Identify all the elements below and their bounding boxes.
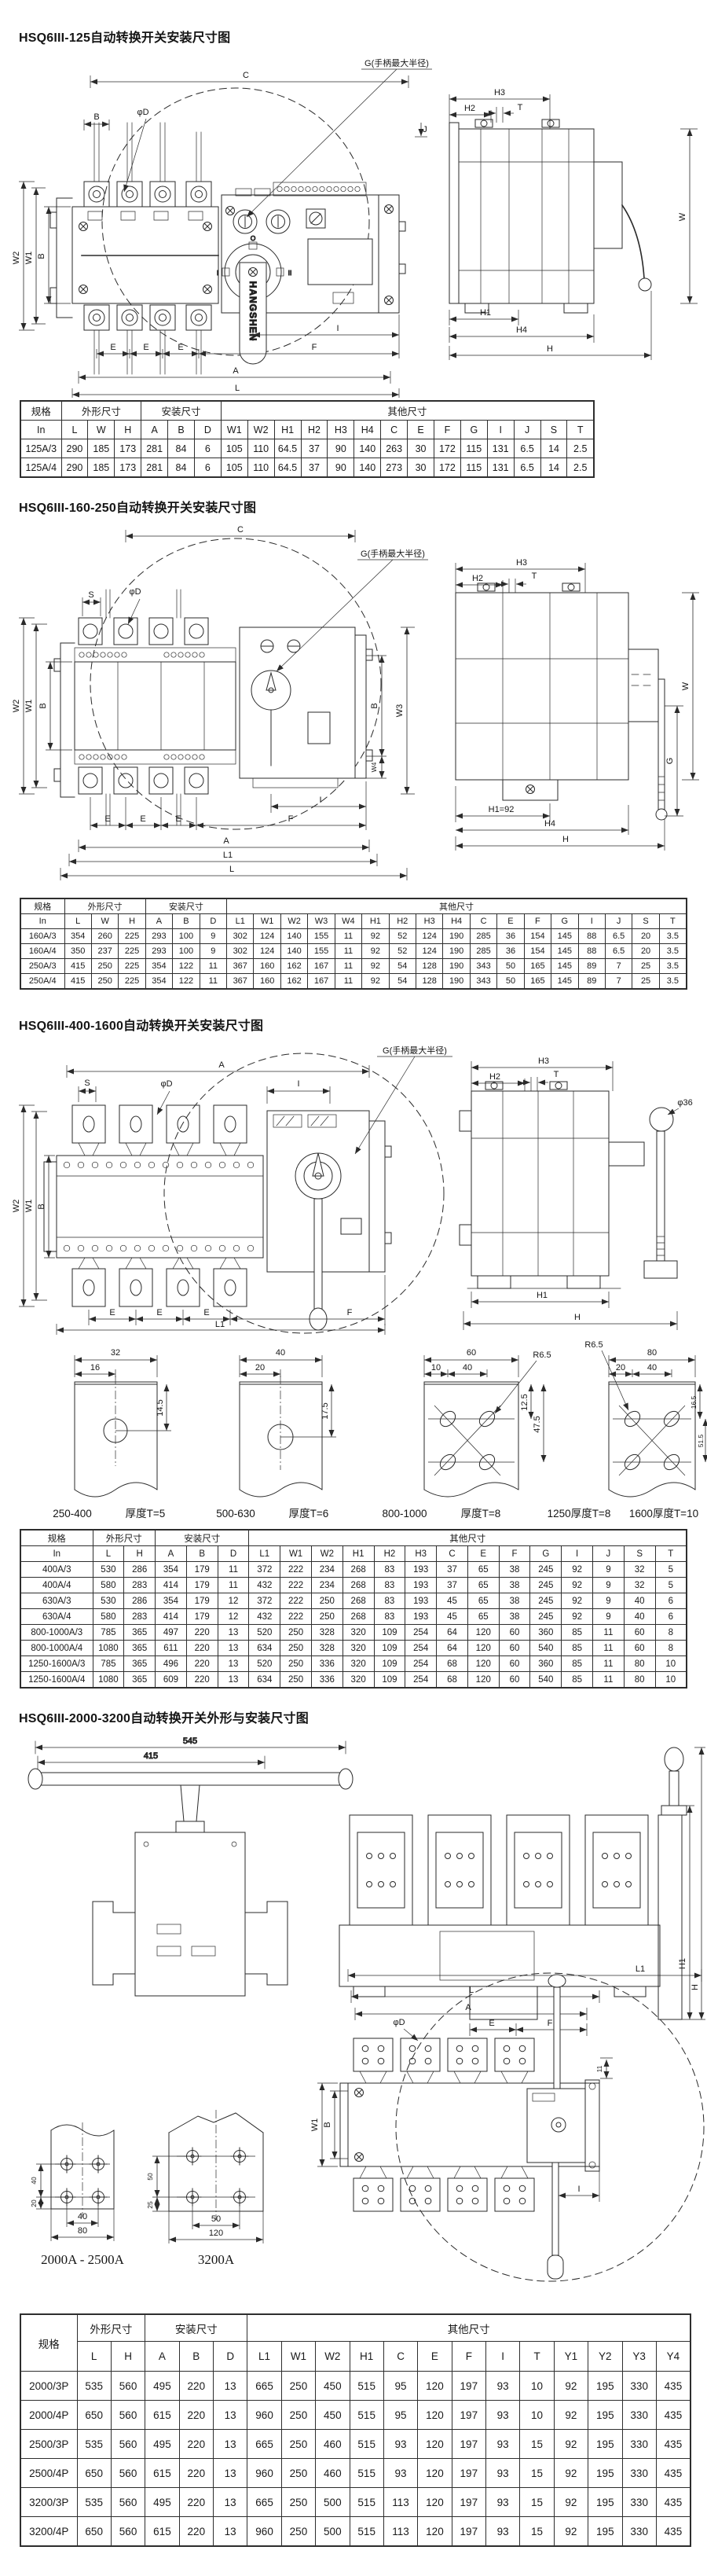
table-cell: 185 [88, 439, 115, 458]
table-cell: 650 [77, 2401, 111, 2430]
terminal-lug [185, 618, 208, 645]
dim-label-h: H [562, 835, 569, 844]
table-cell: 193 [405, 1609, 437, 1625]
table-cell: 286 [124, 1562, 156, 1578]
table-cell: 128 [416, 959, 442, 974]
dim-label-w4: W4 [370, 762, 378, 772]
terminal-bolt [542, 119, 559, 127]
table-cell: 367 [227, 974, 254, 990]
table-cell: 45 [437, 1593, 468, 1609]
table-header-cell: T [655, 1546, 687, 1562]
right-plate [585, 2080, 599, 2171]
table-header-cell: 安装尺寸 [156, 1530, 249, 1546]
table-cell: 11 [335, 944, 361, 959]
handle-post [658, 1815, 682, 2019]
table-header-cell: H2 [301, 421, 328, 439]
table-cell: 197 [452, 2372, 485, 2401]
table-cell: 145 [551, 974, 578, 990]
table-row: 125A/429018517328184610511064.5379014027… [20, 458, 594, 478]
dim-label-e: E [203, 1308, 209, 1317]
terminal-strip-holes [277, 186, 360, 191]
knob-label-o: O [251, 234, 256, 242]
body-rivets [64, 1162, 254, 1251]
side-flanges [93, 1902, 288, 1985]
table-cell: 15 [520, 2517, 554, 2547]
terminal-pad [353, 2178, 393, 2211]
table-cell: 2.5 [567, 439, 594, 458]
screw-icon [385, 205, 394, 214]
table-cell: 560 [111, 2459, 145, 2488]
table-cell: 11 [335, 929, 361, 944]
dim-label-g: G [665, 758, 675, 765]
dimension-drawing-160-250: C G(手柄最大半径) S φD W2 W1 B B W4 W3 EEEF I … [0, 517, 707, 896]
table-cell: 12 [218, 1593, 249, 1609]
dim-label-t: T [518, 103, 523, 112]
table-cell: 197 [452, 2459, 485, 2488]
table-cell: 634 [249, 1672, 280, 1689]
terminal-bolt [478, 583, 495, 591]
dim-label-h4: H4 [516, 325, 527, 335]
table-header-cell: W2 [247, 421, 274, 439]
table-cell: 8 [655, 1625, 687, 1641]
table-cell: 6 [194, 458, 221, 478]
dim-label-w: W [678, 212, 687, 221]
table-cell: 225 [119, 974, 145, 990]
table-header-cell: L [93, 1546, 124, 1562]
table-cell: 179 [186, 1578, 218, 1593]
table-cell: 85 [562, 1641, 593, 1656]
dim-label-h4: H4 [544, 819, 555, 829]
hole-caption: 厚度T=5 [126, 1508, 166, 1520]
table-header-cell: H3 [416, 914, 442, 929]
table-cell: 225 [119, 929, 145, 944]
table-cell: 330 [622, 2459, 656, 2488]
dim-label-a: A [223, 836, 229, 846]
table-cell: 330 [622, 2517, 656, 2547]
table-cell: 365 [124, 1656, 156, 1672]
table-cell: 285 [470, 929, 496, 944]
table-cell: 354 [145, 959, 172, 974]
table-cell: 260 [91, 929, 118, 944]
table-cell: 38 [499, 1562, 530, 1578]
table-cell: 50 [497, 974, 524, 990]
dim-label-phid: φD [393, 2018, 405, 2027]
table-header-cell: 规格 [20, 1530, 93, 1546]
table-cell: 80 [624, 1672, 655, 1689]
terminal-pad [495, 2178, 534, 2211]
dim-label-h1: H1 [480, 308, 491, 318]
handle-knob [656, 809, 667, 820]
table-cell: 500 [316, 2517, 350, 2547]
table-header-cell: J [593, 1546, 625, 1562]
table-cell: 92 [362, 974, 389, 990]
table-cell: 302 [227, 929, 254, 944]
dim-label: 16.5 [690, 1395, 698, 1409]
table-header-cell: H [119, 914, 145, 929]
table-cell: 65 [467, 1578, 499, 1593]
dim-label: 16 [90, 1363, 100, 1373]
table-cell: 110 [247, 439, 274, 458]
table-cell: 195 [588, 2401, 622, 2430]
dim-label-w1: W1 [24, 700, 34, 713]
table-cell: 13 [214, 2459, 247, 2488]
table-cell: 140 [280, 944, 307, 959]
table-cell: 92 [554, 2517, 588, 2547]
table-columns-row: LHABDL1W1W2H1CEFITY1Y2Y3Y4 [20, 2342, 691, 2372]
table-cell: 54 [389, 974, 416, 990]
table-cell: 515 [350, 2430, 383, 2459]
crosshair-hole [90, 2188, 107, 2206]
operating-handle [314, 1199, 322, 1314]
table-cell: 336 [311, 1672, 343, 1689]
pole-module [507, 1815, 570, 1925]
table-cell: 496 [156, 1656, 187, 1672]
table-header-cell: H2 [374, 1546, 405, 1562]
spec-cell: 800-1000A/3 [20, 1625, 93, 1641]
detail-caption: 3200A [198, 2252, 235, 2267]
table-cell: 460 [316, 2430, 350, 2459]
table-header-cell: S [632, 914, 659, 929]
table-cell: 580 [93, 1578, 124, 1593]
table-cell: 3.5 [659, 974, 687, 990]
table-cell: 145 [551, 929, 578, 944]
dim-label-h3: H3 [538, 1056, 549, 1066]
table-cell: 195 [588, 2517, 622, 2547]
table-cell: 85 [562, 1656, 593, 1672]
table-cell: 25 [632, 959, 659, 974]
table-cell: 285 [470, 944, 496, 959]
dim-label-h: H [547, 344, 553, 354]
table-header-cell: Y1 [554, 2342, 588, 2372]
table-cell: 93 [486, 2430, 520, 2459]
side-view [460, 1082, 677, 1288]
terminal-lug [186, 182, 211, 207]
dim-label: 80 [78, 2226, 87, 2236]
table-header-cell: A [145, 2342, 179, 2372]
table-cell: 85 [562, 1625, 593, 1641]
table-cell: 195 [588, 2372, 622, 2401]
table-cell: 237 [91, 944, 118, 959]
table-columns-row: InLWHABDW1W2H1H2H3H4CEFGIJST [20, 421, 594, 439]
pole-module [350, 1815, 412, 1925]
table-cell: 120 [467, 1672, 499, 1689]
table-cell: 160 [254, 959, 280, 974]
table-cell: 343 [470, 974, 496, 990]
busbars-bottom [94, 330, 201, 374]
switch-column [135, 1832, 245, 1996]
table-group-row: 规格外形尺寸安装尺寸其他尺寸 [20, 898, 687, 914]
table-cell: 52 [389, 929, 416, 944]
table-cell: 36 [497, 944, 524, 959]
table-cell: 64.5 [274, 439, 301, 458]
table-cell: 281 [141, 458, 168, 478]
table-cell: 1080 [93, 1672, 124, 1689]
dim-label-f: F [548, 2019, 553, 2028]
table-cell: 365 [124, 1672, 156, 1689]
table-cell: 190 [443, 944, 470, 959]
table-header-cell: B [179, 2342, 213, 2372]
terminal-pad [72, 1269, 105, 1306]
table-cell: 268 [343, 1593, 374, 1609]
terminal-lug [84, 305, 109, 330]
dim-label-i: I [336, 324, 339, 333]
table-cell: 220 [179, 2401, 213, 2430]
table-cell: 92 [562, 1578, 593, 1593]
dim-label-h2: H2 [464, 104, 475, 113]
dim-label-t: T [532, 571, 537, 581]
table-cell: 122 [173, 974, 200, 990]
table-cell: 268 [343, 1578, 374, 1593]
display-window [308, 239, 372, 285]
terminal-pad [495, 2038, 534, 2071]
detail-caption: 2000A - 2500A [41, 2252, 125, 2267]
table-cell: 9 [593, 1609, 625, 1625]
table-cell: 785 [93, 1656, 124, 1672]
table-header-cell: In [20, 1546, 93, 1562]
table-cell: 190 [443, 959, 470, 974]
table-header-cell: W [88, 421, 115, 439]
spec-cell: 800-1000A/4 [20, 1641, 93, 1656]
table-cell: 100 [173, 929, 200, 944]
table-header-cell: L1 [247, 2342, 281, 2372]
table-cell: 12 [218, 1609, 249, 1625]
table-header-cell: E [418, 2342, 452, 2372]
table-header-cell: C [381, 421, 408, 439]
table-cell: 495 [145, 2372, 179, 2401]
handle-upper-rod [554, 1987, 560, 2089]
handle-radius-note: G(手柄最大半径) [364, 57, 429, 68]
table-cell: 60 [499, 1656, 530, 1672]
table-header-cell: 规格 [20, 401, 61, 421]
right-mounting-bracket [369, 1121, 391, 1272]
table-cell: 13 [218, 1672, 249, 1689]
terminal-lug [79, 767, 102, 794]
section-title-400-1600: HSQ6III-400-1600自动转换开关安装尺寸图 [19, 1015, 263, 1034]
table-cell: 120 [418, 2488, 452, 2517]
table-row: 1250-1600A/37853654962201352025033632010… [20, 1656, 687, 1672]
spec-cell: 125A/3 [20, 439, 61, 458]
table-cell: 109 [374, 1656, 405, 1672]
dim-label-i: I [577, 2185, 580, 2194]
table-cell: 250 [281, 2488, 315, 2517]
table-header-cell: H1 [350, 2342, 383, 2372]
table-group-row: 规格外形尺寸安装尺寸其他尺寸 [20, 2314, 691, 2342]
table-cell: 172 [434, 439, 460, 458]
spec-cell: 630A/3 [20, 1593, 93, 1609]
dim-label: 25 [146, 2201, 154, 2209]
table-cell: 960 [247, 2517, 281, 2547]
dim-label-w3: W3 [395, 704, 405, 718]
dim-label: 17.5 [321, 1402, 330, 1419]
table-cell: 124 [254, 929, 280, 944]
table-cell: 220 [186, 1641, 218, 1656]
dim-label-a: A [465, 2003, 471, 2012]
table-cell: 330 [622, 2372, 656, 2401]
table-cell: 281 [141, 439, 168, 458]
table-cell: 84 [168, 458, 195, 478]
table-cell: 222 [280, 1562, 312, 1578]
table-cell: 120 [418, 2517, 452, 2547]
dim-label: 80 [647, 1348, 657, 1358]
side-dimensions: H3 H2 T φ36 H1 H [463, 1056, 693, 1330]
table-cell: 38 [499, 1578, 530, 1593]
table-cell: 330 [622, 2488, 656, 2517]
table-cell: 328 [311, 1625, 343, 1641]
dim-label-f: F [312, 343, 317, 352]
table-cell: 37 [437, 1562, 468, 1578]
table-row: 3200/3P535560495220136652505005151131201… [20, 2488, 691, 2517]
table-cell: 11 [593, 1672, 625, 1689]
dim-label-b: B [37, 1203, 46, 1209]
handle-top-knob [548, 1975, 566, 1987]
dimension-drawing-400-1600: A G(手柄最大半径) S φD I W2 W1 B EEEF L1 H3 H2… [0, 1036, 707, 1336]
table-cell: 535 [77, 2430, 111, 2459]
dimension-table-2000-3200: 规格外形尺寸安装尺寸其他尺寸LHABDL1W1W2H1CEFITY1Y2Y3Y4… [20, 2313, 691, 2547]
table-cell: 10 [655, 1656, 687, 1672]
spec-cell: 250A/3 [20, 959, 64, 974]
table-cell: 11 [593, 1641, 625, 1656]
table-cell: 8 [655, 1641, 687, 1656]
table-cell: 90 [328, 458, 354, 478]
table-header-cell: A [145, 914, 172, 929]
table-cell: 367 [227, 959, 254, 974]
spec-cell: 125A/4 [20, 458, 61, 478]
table-header-cell: D [218, 1546, 249, 1562]
side-dimensions: H3 H2 T G W H1=92 H4 H [456, 558, 699, 851]
table-cell: 254 [405, 1672, 437, 1689]
table-cell: 197 [452, 2488, 485, 2517]
dim-label-11: 11 [595, 2065, 603, 2072]
dim-label-radius: R6.5 [533, 1350, 551, 1360]
table-cell: 560 [111, 2488, 145, 2517]
table-header-cell: S [624, 1546, 655, 1562]
table-row: 400A/35302863541791137222223426883193376… [20, 1562, 687, 1578]
table-cell: 13 [218, 1625, 249, 1641]
table-cell: 38 [499, 1593, 530, 1609]
table-cell: 37 [437, 1578, 468, 1593]
hole-caption: 250-400 [53, 1508, 92, 1520]
terminal-pad [72, 1105, 105, 1143]
table-cell: 6.5 [605, 929, 632, 944]
side-handle-rod [658, 679, 665, 811]
table-cell: 3.5 [659, 959, 687, 974]
table-row: 2000/4P650560615220139602504505159512019… [20, 2401, 691, 2430]
section-title-125: HSQ6III-125自动转换开关安装尺寸图 [19, 27, 230, 46]
table-cell: 250 [91, 959, 118, 974]
left-mounting-bracket [54, 643, 75, 797]
terminal-lug [185, 767, 208, 794]
table-cell: 193 [405, 1562, 437, 1578]
table-cell: 45 [437, 1609, 468, 1625]
side-body [471, 1091, 609, 1276]
table-cell: 195 [588, 2459, 622, 2488]
table-cell: 20 [632, 944, 659, 959]
table-cell: 580 [93, 1609, 124, 1625]
table-cell: 20 [632, 929, 659, 944]
table-cell: 283 [124, 1609, 156, 1625]
table-cell: 222 [280, 1578, 312, 1593]
spec-cell: 3200/3P [20, 2488, 77, 2517]
dim-label-e: E [178, 343, 183, 352]
table-cell: 250 [280, 1672, 312, 1689]
table-cell: 450 [316, 2401, 350, 2430]
table-cell: 5 [655, 1562, 687, 1578]
dim-label-l: L [229, 865, 234, 874]
screw-icon [203, 285, 212, 294]
table-cell: 167 [308, 974, 335, 990]
table-header-cell: Y3 [622, 2342, 656, 2372]
table-cell: 320 [343, 1672, 374, 1689]
hole-caption: 1600厚度T=10 [629, 1508, 698, 1520]
table-cell: 320 [343, 1641, 374, 1656]
spec-cell: 2000/3P [20, 2372, 77, 2401]
table-cell: 360 [530, 1625, 562, 1641]
side-body [456, 593, 628, 780]
table-cell: 665 [247, 2430, 281, 2459]
table-cell: 220 [186, 1625, 218, 1641]
dim-label-l1: L1 [223, 851, 233, 860]
table-header-cell: W3 [308, 914, 335, 929]
handle-mount [609, 1142, 644, 1166]
dim-label-c: C [237, 525, 244, 535]
indicator-meters [233, 210, 290, 233]
table-columns-row: InLWHABDL1W1W2W3W4H1H2H3H4CEFGIJST [20, 914, 687, 929]
table-cell: 30 [408, 439, 434, 458]
table-row: 3200/4P650560615220139602505005151131201… [20, 2517, 691, 2547]
table-cell: 115 [460, 439, 487, 458]
dim-label-l: L [235, 384, 240, 393]
dim-label: 120 [209, 2229, 223, 2238]
table-cell: 268 [343, 1562, 374, 1578]
front-dimensions: A G(手柄最大半径) S φD I W2 W1 B EEEF L1 [12, 1045, 452, 1335]
table-cell: 88 [578, 929, 605, 944]
dim-label-h1: H1 [537, 1291, 548, 1300]
table-header-cell: J [605, 914, 632, 929]
table-cell: 68 [437, 1672, 468, 1689]
table-cell: 354 [145, 974, 172, 990]
table-cell: 9 [200, 929, 226, 944]
table-cell: 13 [218, 1641, 249, 1656]
table-cell: 250 [311, 1593, 343, 1609]
table-cell: 320 [343, 1625, 374, 1641]
hole-panel-500-630: 40 20 17.5 500-630 厚度T=6 [216, 1348, 336, 1520]
table-cell: 10 [520, 2401, 554, 2430]
table-cell: 197 [452, 2517, 485, 2547]
table-cell: 120 [467, 1641, 499, 1656]
table-header-cell: J [514, 421, 540, 439]
terminal-pad [167, 1269, 200, 1306]
table-cell: 140 [354, 439, 381, 458]
table-cell: 354 [156, 1562, 187, 1578]
table-cell: 250 [281, 2517, 315, 2547]
hole-caption: 厚度T=8 [461, 1508, 501, 1520]
table-cell: 245 [530, 1562, 562, 1578]
table-header-cell: W2 [280, 914, 307, 929]
screw-icon [385, 296, 394, 305]
table-cell: 515 [350, 2459, 383, 2488]
table-cell: 250 [280, 1656, 312, 1672]
side-view [456, 583, 667, 820]
dim-label-f: F [288, 814, 294, 824]
table-cell: 11 [335, 974, 361, 990]
table-cell: 283 [124, 1578, 156, 1593]
table-header-cell: 规格 [20, 898, 64, 914]
crosshair-hole [231, 2148, 248, 2165]
spec-cell: 160A/3 [20, 929, 64, 944]
table-header-cell: L [77, 2342, 111, 2372]
table-cell: 13 [214, 2517, 247, 2547]
left-mounting-bracket [50, 198, 72, 318]
